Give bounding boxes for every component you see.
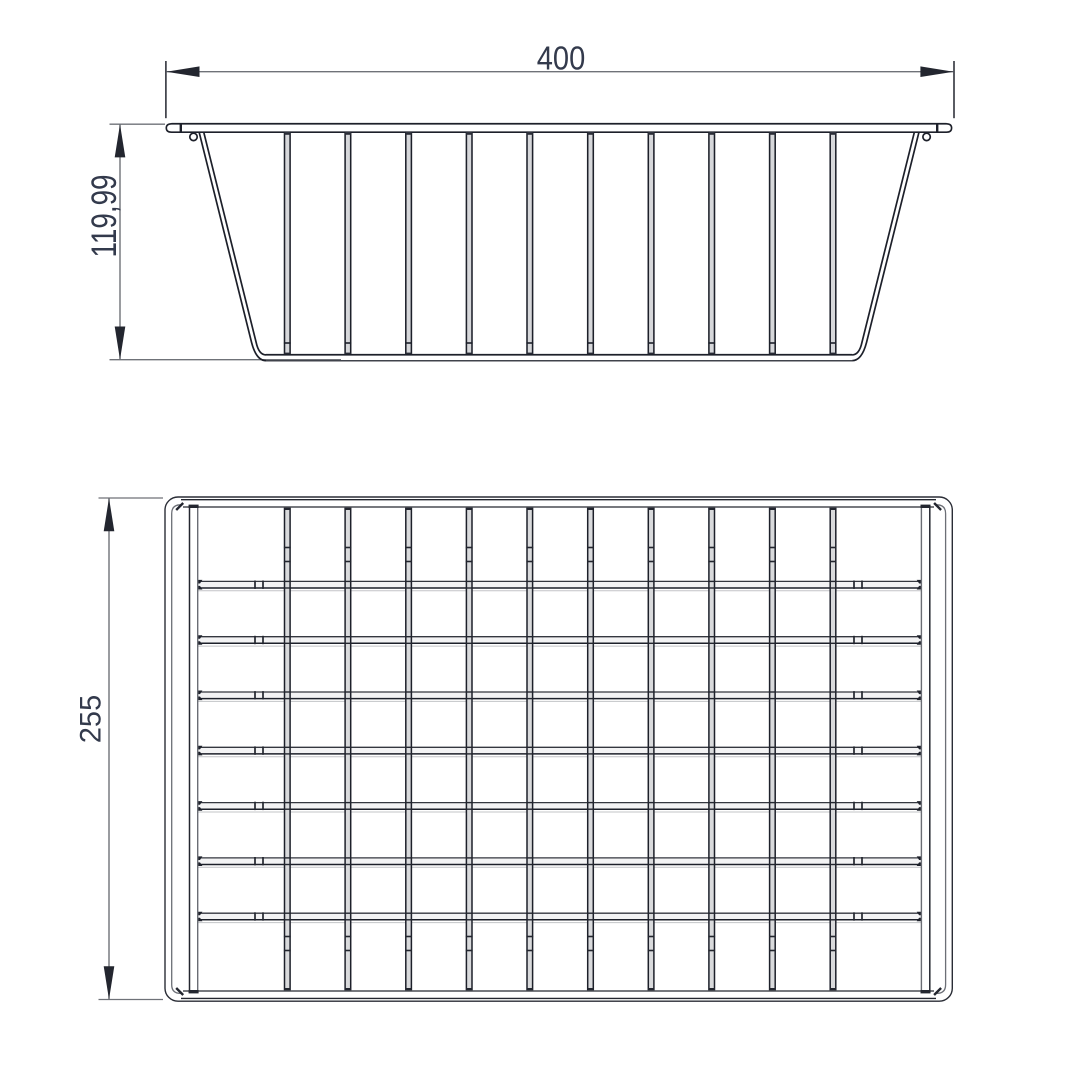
svg-text:255: 255: [74, 695, 107, 744]
svg-text:400: 400: [537, 40, 586, 77]
svg-text:119,99: 119,99: [85, 175, 124, 258]
